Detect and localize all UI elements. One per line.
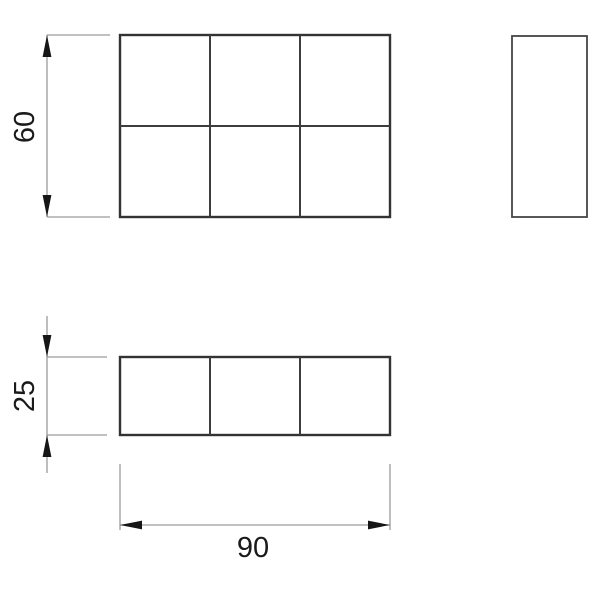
front-view [120, 357, 390, 435]
arrow-up-icon [43, 435, 52, 457]
dimension-width: 90 [120, 464, 390, 564]
top-view [120, 35, 390, 217]
arrow-down-icon [43, 195, 52, 217]
dimension-height: 60 [9, 35, 110, 217]
three-view-drawing: 60 25 90 [0, 0, 600, 600]
dimension-width-label: 90 [237, 532, 269, 564]
technical-drawing-canvas: 60 25 90 [0, 0, 600, 600]
arrow-down-icon [43, 335, 52, 357]
dimension-depth: 25 [9, 316, 107, 473]
arrow-left-icon [120, 521, 142, 530]
arrow-up-icon [43, 35, 52, 57]
side-view [512, 36, 587, 217]
side-view-outline [512, 36, 587, 217]
dimension-depth-label: 25 [9, 380, 41, 412]
front-view-outline [120, 357, 390, 435]
dimension-height-label: 60 [9, 111, 41, 143]
arrow-right-icon [368, 521, 390, 530]
